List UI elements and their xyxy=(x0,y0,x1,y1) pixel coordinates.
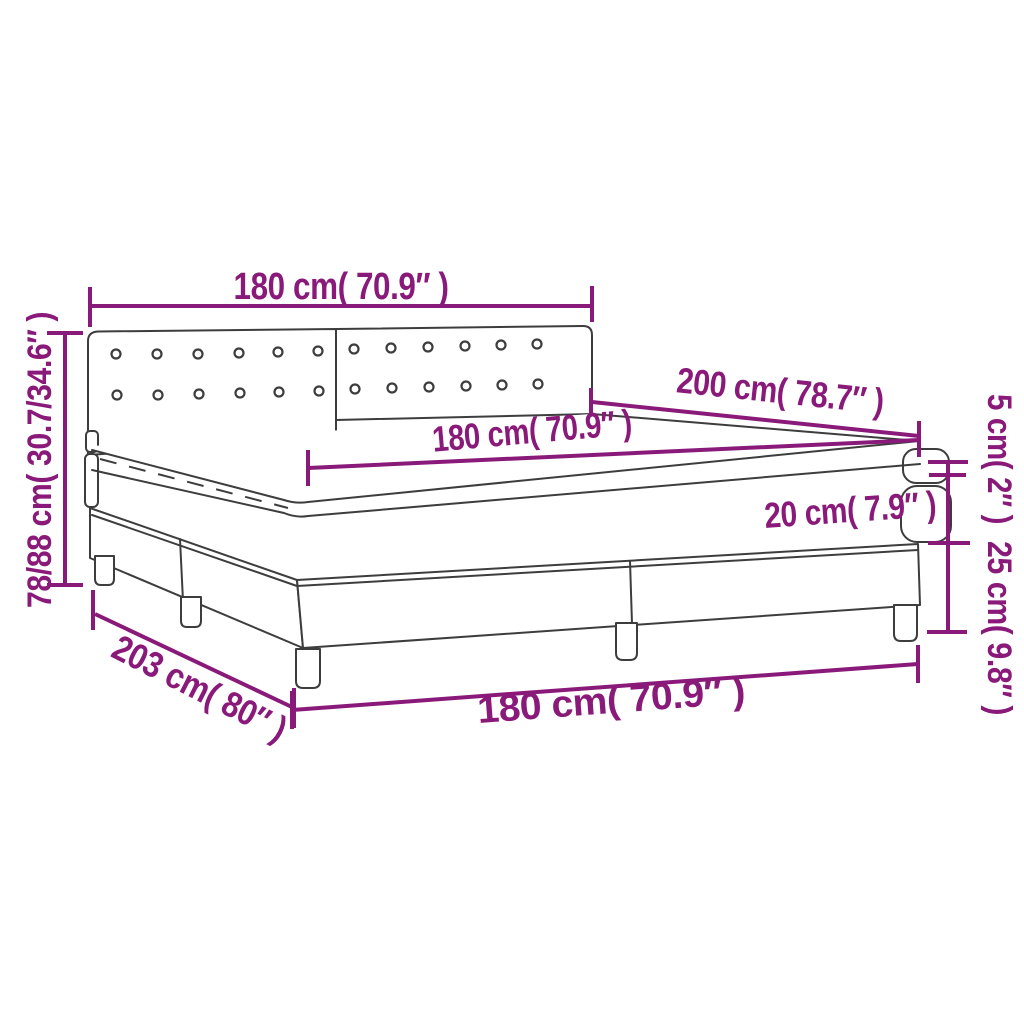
dim-label-base-width: 180 cm( 70.9″ ) xyxy=(476,670,746,732)
dim-label-topper-thickness: 5 cm( 2″ ) xyxy=(980,394,1018,524)
bed-leg xyxy=(181,597,201,627)
bed-leg xyxy=(296,649,320,688)
base-front-face xyxy=(297,544,920,648)
dim-label-overall-height: 78/88 cm( 30.7/34.6″ ) xyxy=(21,312,59,608)
diagram-canvas: 180 cm( 70.9″ ) 78/88 cm( 30.7/34.6″ ) 2… xyxy=(0,0,1024,1024)
bed-dimension-diagram: 180 cm( 70.9″ ) 78/88 cm( 30.7/34.6″ ) 2… xyxy=(0,0,1024,1024)
topper-right-end xyxy=(903,449,949,483)
dim-label-headboard-width: 180 cm( 70.9″ ) xyxy=(234,266,449,308)
dim-label-base-height: 25 cm( 9.8″ ) xyxy=(980,541,1018,715)
bed-leg xyxy=(616,623,637,660)
dim-label-overall-length: 203 cm( 80″ ) xyxy=(106,626,294,749)
bed-leg xyxy=(894,605,917,641)
mattress-left-end xyxy=(85,454,98,507)
bed-leg xyxy=(95,556,114,585)
headboard-panel-right xyxy=(336,326,592,420)
